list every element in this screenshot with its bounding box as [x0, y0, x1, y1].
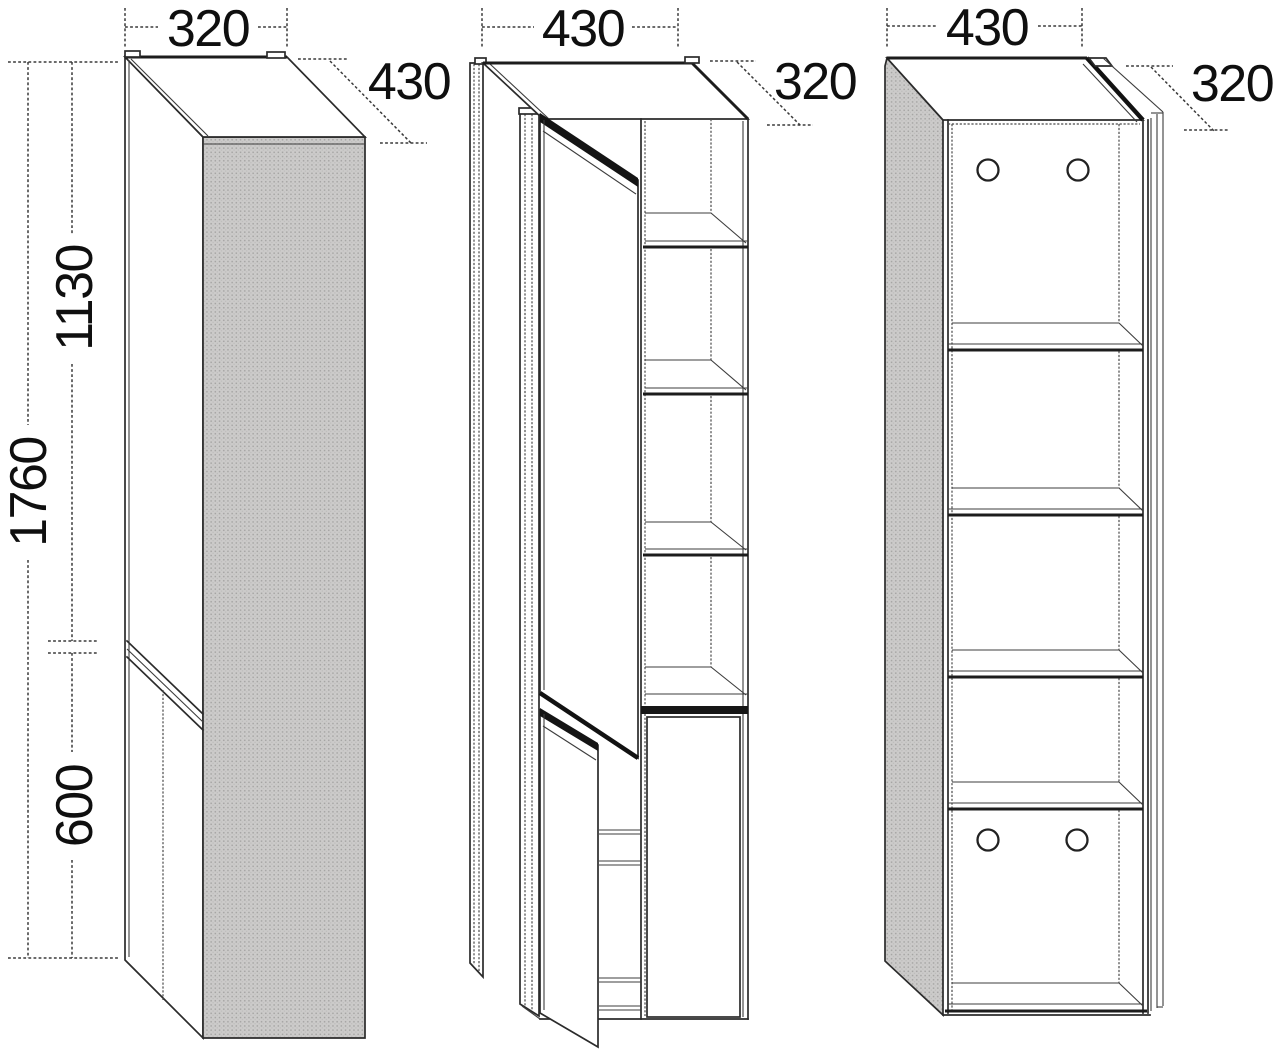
dim-label-lower-door-height: 600: [46, 765, 104, 847]
tall-open-door: [540, 113, 638, 758]
view-open-cabinet: [470, 57, 748, 1047]
drawing-canvas: 320 430 1760 1130 600: [0, 0, 1280, 1056]
mid-divider-panel: [641, 706, 748, 714]
carcass-bottom: [943, 983, 1150, 1015]
shelf: [645, 667, 748, 695]
hinge-tab: [267, 52, 285, 58]
shelf: [948, 323, 1143, 350]
closed-hatched-panel: [203, 137, 365, 1038]
closed-side-face: [125, 57, 203, 1038]
hinge-tab: [125, 51, 140, 57]
lower-open-door: [540, 708, 598, 1047]
hinge-tab: [685, 57, 699, 63]
shelf-hatched-side-panel: [885, 58, 943, 1015]
shelf: [643, 522, 748, 555]
dim-label-closed-total-height: 1760: [0, 437, 58, 547]
dim-label-closed-width: 320: [167, 0, 249, 58]
shelf: [643, 213, 748, 247]
view-shelf-cabinet: [885, 58, 1163, 1015]
mounting-hole: [1068, 160, 1089, 181]
dim-label-shelf-width: 430: [946, 0, 1028, 57]
interior-frame: [948, 120, 1143, 1013]
right-outer-wall: [1103, 58, 1163, 1013]
shelf: [643, 360, 748, 394]
mounting-hole: [978, 830, 999, 851]
shelf: [948, 488, 1143, 515]
right-wall: [743, 119, 748, 1019]
dim-label-shelf-depth: 320: [1191, 55, 1273, 113]
open-door-edge-strips: [470, 58, 539, 1016]
dim-label-upper-door-height: 1130: [46, 245, 104, 351]
view-closed-cabinet: [125, 51, 365, 1038]
cabinet-technical-drawing: 320 430 1760 1130 600: [0, 0, 1280, 1056]
mounting-hole: [1067, 830, 1088, 851]
shelf: [948, 782, 1143, 809]
inner-drawer-lines: [599, 830, 641, 1010]
dim-label-closed-depth: 430: [368, 53, 450, 111]
mounting-hole: [978, 160, 999, 181]
mounting-holes: [978, 160, 1089, 851]
dim-label-open-width: 430: [542, 0, 624, 58]
shelf: [948, 650, 1143, 677]
dim-label-open-depth: 320: [774, 53, 856, 111]
lower-closed-door: [647, 717, 740, 1017]
